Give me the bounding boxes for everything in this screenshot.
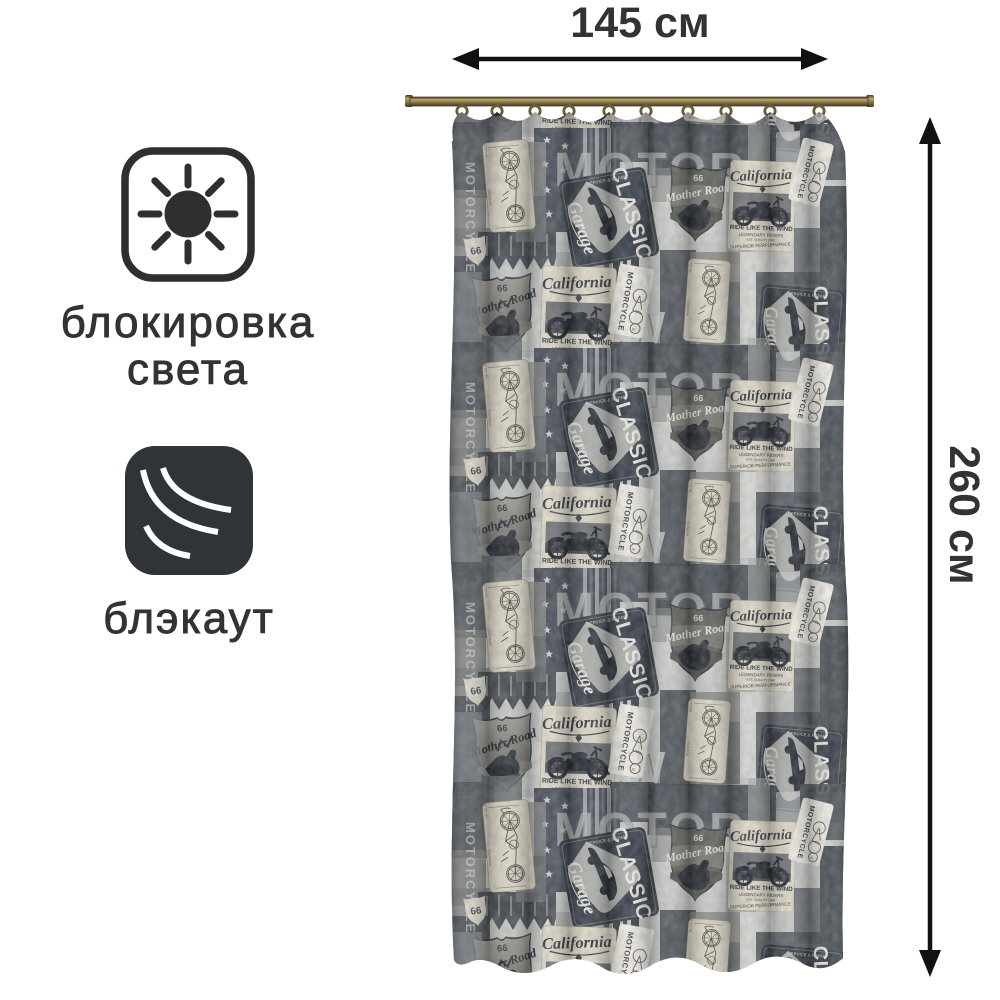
svg-text:260 см: 260 см [940, 445, 988, 584]
svg-text:145 см: 145 см [570, 0, 709, 47]
svg-text:света: света [127, 345, 249, 394]
svg-text:блокировка: блокировка [61, 298, 316, 347]
svg-text:блэкаут: блэкаут [103, 594, 275, 643]
